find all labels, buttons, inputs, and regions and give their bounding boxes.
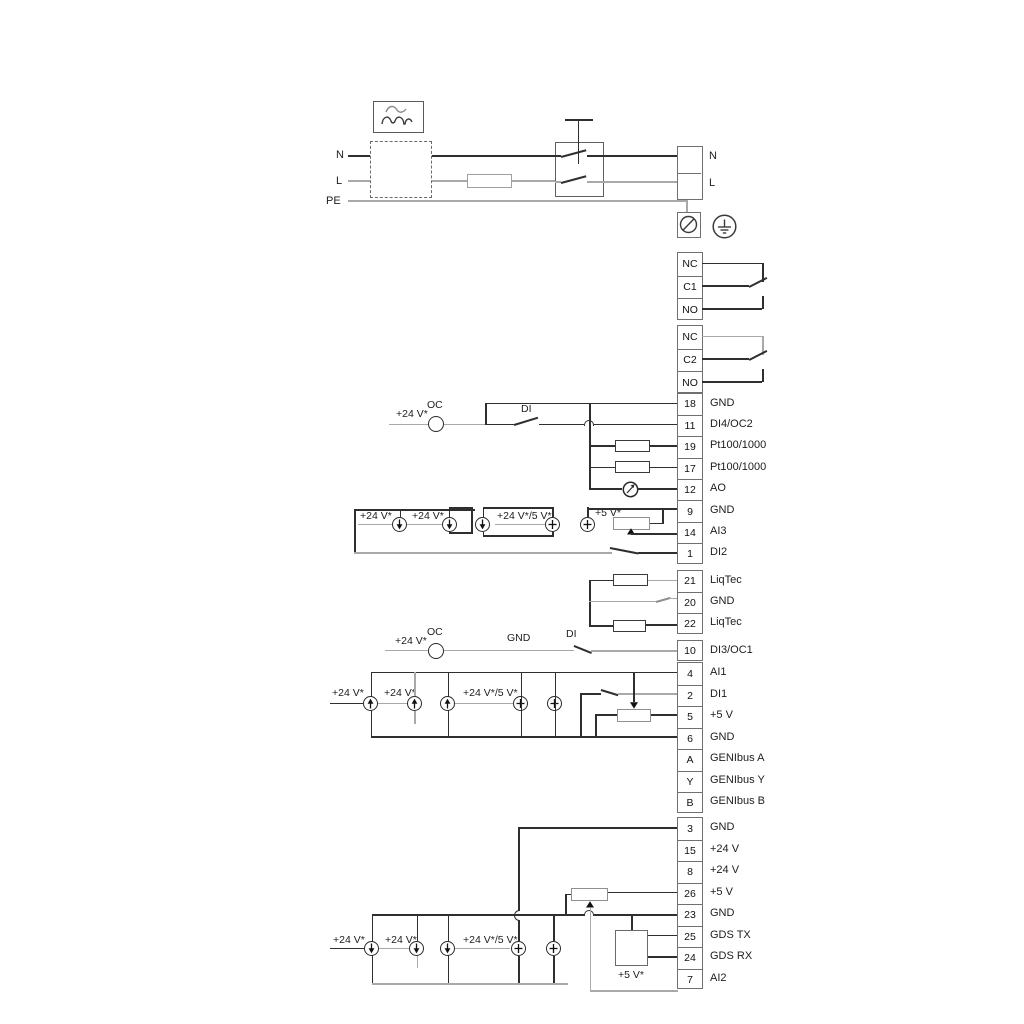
wire: [555, 672, 557, 737]
di-switch-blade: [601, 689, 618, 696]
relay-contact-blade: [749, 350, 768, 360]
wire: [553, 956, 555, 983]
wire: [587, 508, 677, 510]
wire: [633, 672, 635, 702]
terminal: 5: [678, 706, 702, 728]
wire: [330, 703, 363, 705]
terminal-block-liqtec: 21 20 22: [677, 570, 703, 635]
terminal-number: NC: [682, 331, 697, 343]
current-source-up: [440, 696, 455, 711]
wire: [618, 693, 677, 695]
terminal: 25: [678, 926, 702, 948]
terminal: 8: [678, 861, 702, 883]
wire: [518, 956, 520, 983]
terminal-label: +24 V: [710, 843, 739, 856]
terminal: 3: [678, 818, 702, 840]
protective-earth-icon: [711, 213, 738, 240]
wire: [417, 914, 419, 940]
terminal: C2: [678, 349, 702, 372]
wire: [762, 296, 764, 309]
wire: [591, 650, 677, 652]
waveform-icon: [374, 102, 422, 131]
wire: [580, 693, 582, 736]
wire: [518, 920, 520, 941]
pe-terminal-box: [677, 212, 701, 238]
terminal-label: +5 V: [710, 709, 733, 722]
wire: [471, 507, 473, 533]
wire: [589, 601, 657, 603]
current-source-plus: [511, 941, 526, 956]
terminal-label: AI3: [710, 525, 727, 538]
terminal-block-relay1: NC C1 NO: [677, 252, 703, 320]
wire: [650, 467, 677, 469]
terminal-label: LiqTec: [710, 574, 742, 587]
terminal-label: DI4/OC2: [710, 418, 753, 431]
wire: [485, 403, 677, 405]
wire: [485, 424, 515, 426]
wire: [702, 263, 762, 265]
terminal-label: AO: [710, 482, 726, 495]
wire: [553, 914, 555, 940]
terminal-number: 9: [687, 506, 693, 518]
wire: [587, 181, 604, 183]
wire: [590, 908, 592, 991]
wire: [330, 948, 364, 950]
current-source-down: [364, 941, 379, 956]
wire: [762, 369, 764, 382]
terminal-number: 15: [684, 845, 696, 857]
di-switch-blade: [610, 547, 639, 554]
wire: [702, 308, 762, 310]
terminal: 22: [678, 613, 702, 634]
resistor: [613, 574, 648, 586]
terminal-block-io1: 18 11 19 17 12 9 14 1: [677, 393, 703, 565]
terminal: 11: [678, 415, 702, 436]
terminal-label: Pt100/1000: [710, 461, 766, 474]
supply-label: +24 V*: [360, 510, 392, 522]
terminal-number: B: [686, 797, 693, 809]
terminal: NC: [678, 253, 702, 276]
terminal-label: GENIbus A: [710, 752, 764, 765]
supply-label: +24 V*: [395, 635, 427, 647]
terminal: 1: [678, 543, 702, 564]
wire: [589, 445, 615, 447]
wire: [669, 598, 677, 600]
supply-label: +24 V*: [333, 934, 365, 946]
terminal-label: +24 V: [710, 864, 739, 877]
terminal-number: Y: [686, 776, 693, 788]
wire: [449, 532, 473, 534]
wire: [648, 956, 677, 958]
wire: [432, 155, 555, 157]
wire: [702, 336, 762, 338]
terminal: 21: [678, 571, 702, 592]
terminal-label: GND: [710, 907, 734, 920]
terminal-label: LiqTec: [710, 616, 742, 629]
terminal: 14: [678, 522, 702, 543]
wire: [495, 524, 545, 526]
wire: [589, 488, 622, 490]
wire: [512, 180, 555, 182]
di-label: DI: [521, 403, 532, 415]
current-source-plus: [545, 517, 560, 532]
di-switch-blade: [574, 645, 592, 653]
wire: [604, 181, 677, 183]
terminal-number: NO: [682, 304, 698, 316]
wire: [650, 523, 663, 525]
wire: [518, 827, 677, 829]
open-collector-node: [428, 643, 444, 659]
wire: [518, 827, 520, 911]
terminal: 18: [678, 394, 702, 415]
terminal: 15: [678, 840, 702, 862]
supply-label: +24 V*/5 V*: [497, 510, 552, 522]
wire: [638, 488, 677, 490]
terminal-label: AI2: [710, 972, 727, 985]
terminal-number: 17: [684, 463, 696, 475]
terminal: C1: [678, 276, 702, 299]
wire: [650, 445, 677, 447]
terminal-number: C1: [683, 281, 696, 293]
wire: [455, 703, 513, 705]
wire: [483, 507, 485, 517]
wire: [378, 703, 408, 705]
terminal-number: 14: [684, 527, 696, 539]
terminal-label: GENIbus Y: [710, 774, 765, 787]
terminal-number: 24: [684, 952, 696, 964]
supply-label: +24 V*/5 V*: [463, 934, 518, 946]
terminal: 26: [678, 883, 702, 905]
terminal: A: [678, 749, 702, 771]
waveform-box: [373, 101, 424, 133]
wire: [379, 948, 409, 950]
wire: [638, 552, 677, 554]
terminal-number: C2: [683, 354, 696, 366]
terminal-label: GND: [710, 821, 734, 834]
wire: [371, 736, 677, 738]
wire: [455, 948, 510, 950]
current-source-down: [475, 517, 490, 532]
wire: [595, 714, 617, 716]
supply-label: +24 V*: [396, 408, 428, 420]
wire: [590, 990, 678, 992]
wire: [595, 714, 597, 736]
terminal-number: 22: [684, 618, 696, 630]
terminal-label: DI2: [710, 546, 727, 559]
terminal-label: GND: [710, 595, 734, 608]
terminal-number: NO: [682, 377, 698, 389]
wire: [648, 580, 677, 582]
terminal: 19: [678, 436, 702, 457]
divider: [678, 173, 701, 174]
terminal-number: 3: [687, 823, 693, 835]
terminal-number: 21: [684, 575, 696, 587]
wire: [565, 894, 567, 915]
wire: [646, 624, 677, 626]
wire: [372, 983, 568, 985]
terminal: 9: [678, 500, 702, 521]
wire: [354, 552, 612, 554]
open-collector-node: [428, 416, 444, 432]
wire: [358, 524, 392, 526]
terminal-number: 10: [684, 645, 696, 657]
wire: [385, 650, 428, 652]
terminal-number: NC: [682, 258, 697, 270]
wire: [414, 711, 416, 724]
wire: [400, 509, 402, 517]
wire: [348, 200, 686, 202]
terminal-number: 26: [684, 888, 696, 900]
terminal: 6: [678, 728, 702, 750]
wire: [648, 935, 677, 937]
wire: [371, 672, 677, 674]
terminal-label: Pt100/1000: [710, 439, 766, 452]
terminal-number: 6: [687, 733, 693, 745]
gds-module-box: [615, 930, 648, 966]
current-source-down: [409, 941, 424, 956]
supply-label: +24 V*: [332, 687, 364, 699]
analog-output-meter-icon: [622, 481, 639, 498]
terminal: 20: [678, 592, 702, 613]
current-source-down: [442, 517, 457, 532]
wire: [589, 625, 613, 627]
oc-label: OC: [427, 399, 443, 411]
terminal-block-relay2: NC C2 NO: [677, 325, 703, 393]
terminal: 2: [678, 685, 702, 707]
potentiometer: [571, 888, 608, 901]
wire: [539, 424, 584, 426]
pe-screw-icon: [678, 213, 699, 236]
current-source-up: [363, 696, 378, 711]
terminal-label: GENIbus B: [710, 795, 765, 808]
di-label: DI: [566, 628, 577, 640]
terminal-block-io3: 3 15 8 26 23 25 24 7: [677, 817, 703, 989]
wire: [589, 580, 591, 627]
switch-handle-bar: [565, 119, 593, 121]
wire: [354, 509, 356, 553]
terminal-number: 1: [687, 548, 693, 560]
wire: [651, 714, 677, 716]
oc-label: OC: [427, 626, 443, 638]
current-source-down: [392, 517, 407, 532]
wire: [702, 358, 749, 360]
terminal: B: [678, 792, 702, 814]
wire: [389, 424, 429, 426]
terminal-number: 19: [684, 441, 696, 453]
terminal: Y: [678, 771, 702, 793]
terminal: 24: [678, 947, 702, 969]
supply-label: +5 V*: [618, 969, 644, 981]
terminal-block-di3: 10: [677, 640, 703, 662]
power-n-label: N: [336, 149, 344, 162]
wire: [552, 532, 554, 536]
current-source-up: [407, 696, 422, 711]
supply-label: +24 V*/5 V*: [463, 687, 518, 699]
wire: [702, 381, 762, 383]
terminal-number: 12: [684, 484, 696, 496]
wire: [449, 507, 473, 509]
terminal: 4: [678, 663, 702, 685]
power-pe-label: PE: [326, 195, 341, 208]
converter-box: [370, 141, 432, 198]
di-switch-blade: [514, 417, 538, 426]
power-l-label: L: [336, 175, 342, 188]
terminal: 17: [678, 458, 702, 479]
wire: [348, 155, 370, 157]
wire: [444, 424, 485, 426]
wire: [631, 533, 677, 535]
mains-n-label: N: [709, 150, 717, 163]
terminal-label: DI1: [710, 688, 727, 701]
wire: [417, 956, 419, 968]
gnd-label: GND: [507, 632, 530, 644]
wire: [604, 155, 677, 157]
supply-label: +24 V*: [412, 510, 444, 522]
terminal-label: +5 V: [710, 886, 733, 899]
terminal: NC: [678, 326, 702, 349]
current-source-plus: [546, 941, 561, 956]
wire: [407, 524, 442, 526]
terminal-number: 23: [684, 909, 696, 921]
terminal: NO: [678, 298, 702, 321]
terminal: 7: [678, 969, 702, 991]
switch-linkage: [578, 120, 579, 164]
terminal-number: 20: [684, 597, 696, 609]
current-source-down: [440, 941, 455, 956]
resistor: [615, 440, 650, 452]
resistor: [613, 620, 646, 632]
wire: [702, 285, 749, 287]
terminal-label: GND: [710, 731, 734, 744]
terminal-label: GDS RX: [710, 950, 752, 963]
wire: [594, 424, 677, 426]
terminal-label: GND: [710, 504, 734, 517]
terminal-label: GND: [710, 397, 734, 410]
wire: [444, 650, 574, 652]
wire: [432, 180, 467, 182]
relay-contact-blade: [749, 277, 768, 287]
wire: [485, 403, 487, 425]
terminal-label: DI3/OC1: [710, 644, 753, 657]
wire: [662, 508, 664, 523]
terminal-number: 11: [685, 420, 696, 432]
wire: [686, 200, 688, 212]
wire: [348, 180, 370, 182]
wire: [483, 532, 485, 536]
wire: [631, 914, 633, 930]
terminal-number: A: [686, 754, 693, 766]
terminal-number: 2: [687, 690, 693, 702]
terminal-label: GDS TX: [710, 929, 751, 942]
wire: [552, 507, 554, 517]
wiring-diagram: N L PE N L: [0, 0, 1024, 1024]
terminal-number: 25: [684, 931, 696, 943]
terminal: NO: [678, 371, 702, 394]
terminal: 12: [678, 479, 702, 500]
terminal-number: 8: [687, 866, 693, 878]
wire: [589, 580, 613, 582]
wire: [594, 914, 677, 916]
terminal-block-io2: 4 2 5 6 A Y B: [677, 662, 703, 813]
mains-l-label: L: [709, 177, 715, 190]
wire: [521, 672, 523, 737]
wire: [414, 672, 416, 696]
wire: [580, 693, 601, 695]
terminal-number: 18: [684, 398, 696, 410]
wire: [587, 155, 604, 157]
wire: [589, 467, 615, 469]
terminal-label: AI1: [710, 666, 727, 679]
terminal: 10: [678, 641, 702, 663]
terminal-number: 4: [687, 668, 693, 680]
terminal-number: 7: [687, 974, 693, 986]
resistor: [615, 461, 650, 473]
fuse: [467, 174, 512, 188]
wire: [483, 535, 554, 537]
terminal: 23: [678, 904, 702, 926]
potentiometer: [617, 709, 651, 722]
wire: [608, 892, 677, 894]
terminal-number: 5: [687, 711, 693, 723]
current-source-plus: [580, 517, 595, 532]
